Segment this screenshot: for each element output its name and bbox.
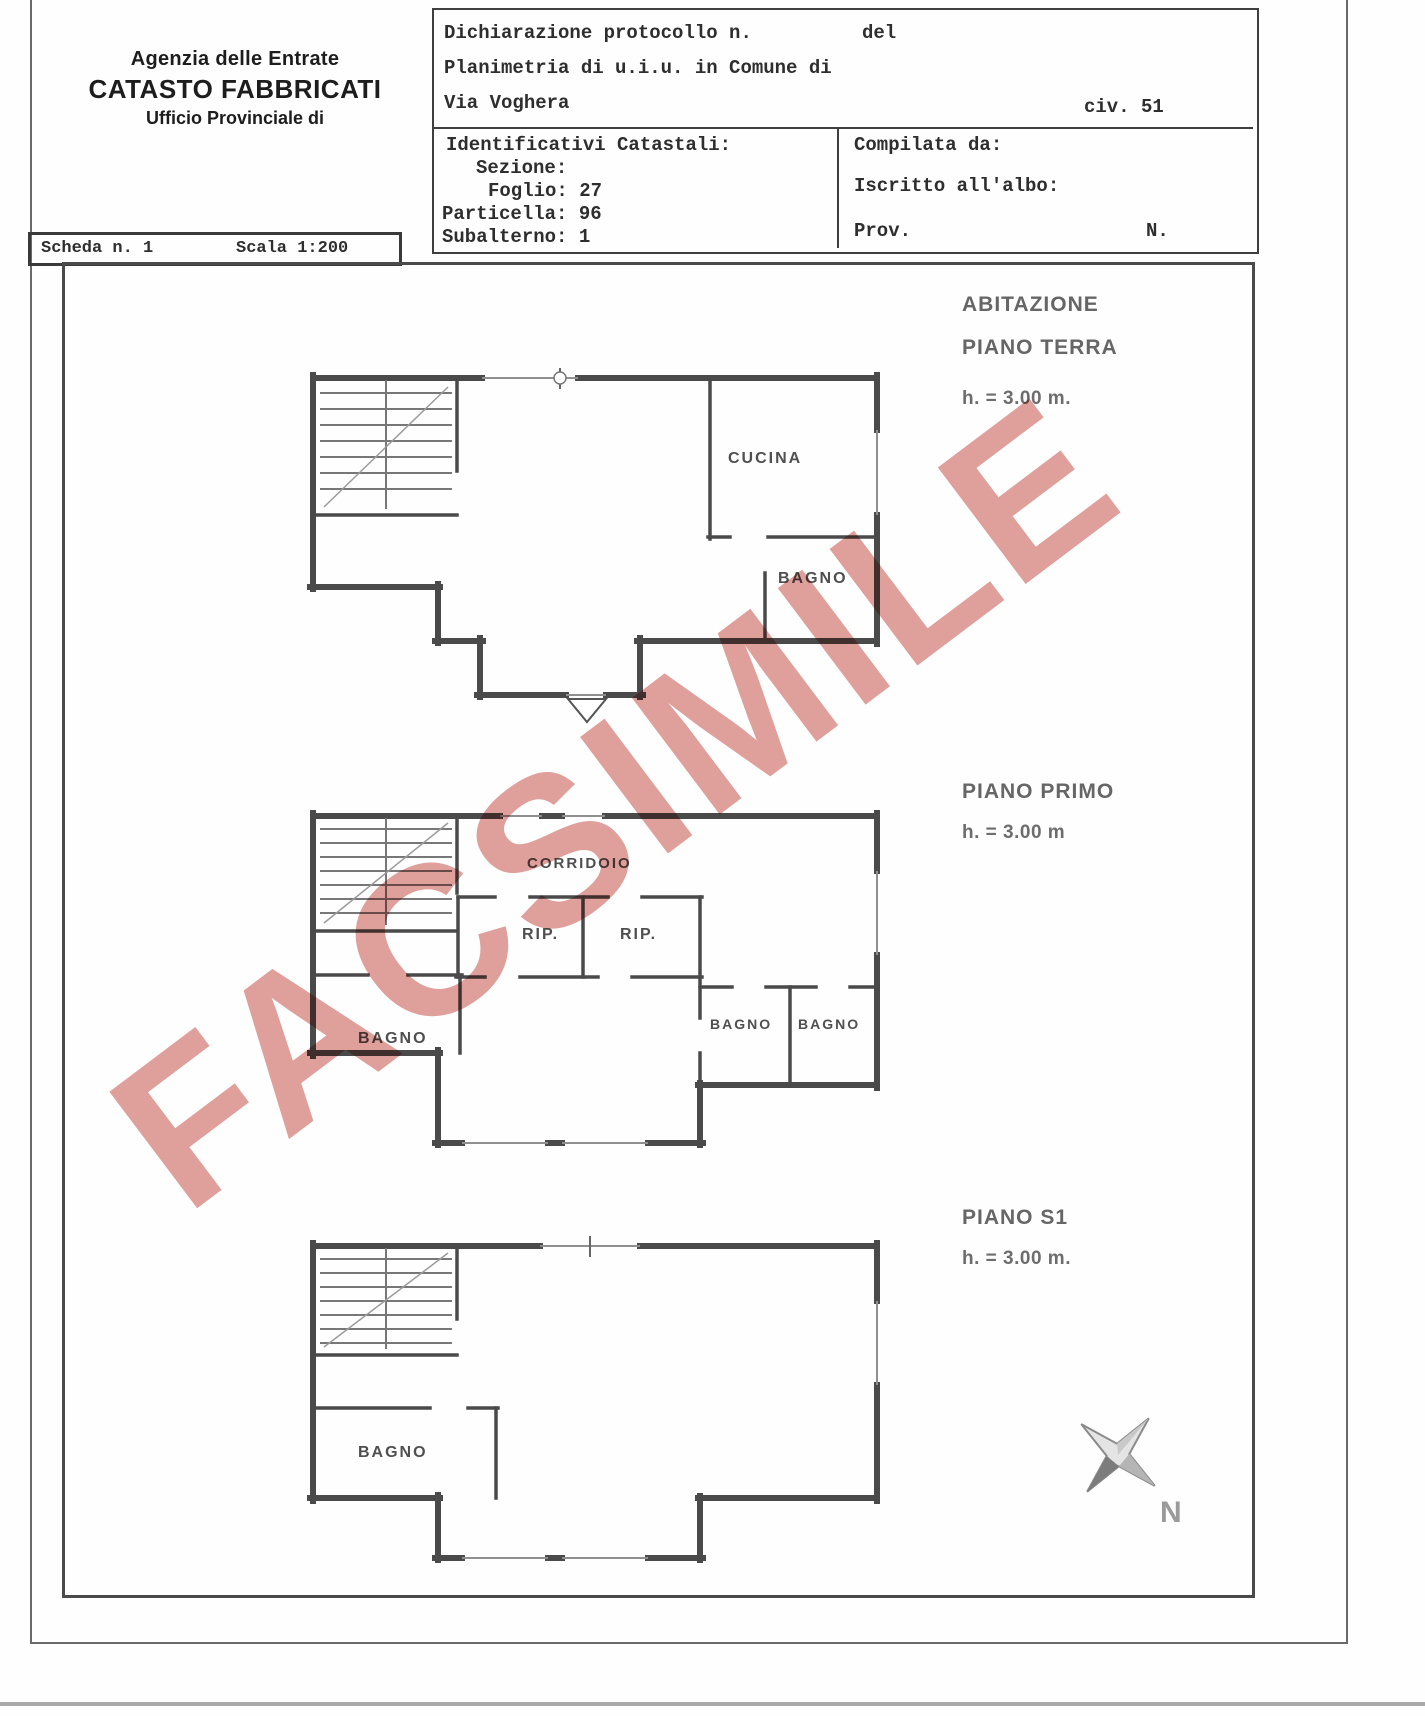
stairs-icon (320, 380, 452, 509)
window-symbol-icon (554, 372, 566, 384)
form-row-divider (434, 127, 1253, 129)
particella-value: Particella: 96 (442, 205, 602, 224)
page-bottom-edge (0, 1702, 1425, 1706)
subalterno-value: Subalterno: 1 (442, 228, 590, 247)
foglio-value: Foglio: 27 (488, 182, 602, 201)
room-label-bagno-s1: BAGNO (358, 1444, 428, 1462)
form-col-divider (837, 127, 839, 248)
compass-rose-icon (1068, 1405, 1168, 1505)
compilata-da-label: Compilata da: (854, 136, 1002, 155)
stairs-icon (320, 1248, 452, 1349)
window-lines (462, 1246, 877, 1558)
floor-title-abitazione: ABITAZIONE (962, 293, 1099, 317)
sezione-label: Sezione: (476, 159, 567, 178)
n-label: N. (1146, 222, 1169, 241)
dichiarazione-label: Dichiarazione protocollo n. (444, 24, 752, 43)
scheda-number: Scheda n. 1 (41, 240, 153, 257)
agency-header: Agenzia delle Entrate CATASTO FABBRICATI… (85, 48, 385, 129)
protocol-form-box: Dichiarazione protocollo n. del Planimet… (432, 8, 1259, 254)
floor-title-piano-primo: PIANO PRIMO (962, 780, 1114, 804)
catasto-title: CATASTO FABBRICATI (85, 74, 385, 105)
identificativi-title: Identificativi Catastali: (446, 136, 731, 155)
floor-plan-piano-s1 (310, 1243, 880, 1573)
room-label-bagno-primo-mid: BAGNO (710, 1016, 772, 1032)
via-value: Via Voghera (444, 94, 569, 113)
floor-title-piano-s1: PIANO S1 (962, 1206, 1068, 1230)
scala-value: Scala 1:200 (236, 240, 348, 257)
prov-label: Prov. (854, 222, 911, 241)
room-label-bagno-primo-right: BAGNO (798, 1016, 860, 1032)
floor-title-piano-terra: PIANO TERRA (962, 336, 1118, 360)
outer-walls (310, 1243, 877, 1560)
ufficio-provinciale: Ufficio Provinciale di (85, 108, 385, 129)
del-label: del (862, 24, 896, 43)
floor-height-primo: h. = 3.00 m (962, 822, 1065, 844)
room-label-cucina: CUCINA (728, 450, 802, 468)
iscritto-albo-label: Iscritto all'albo: (854, 177, 1059, 196)
civico-value: civ. 51 (1084, 98, 1164, 117)
floor-height-s1: h. = 3.00 m. (962, 1248, 1071, 1270)
agency-name: Agenzia delle Entrate (85, 48, 385, 71)
scheda-box: Scheda n. 1 Scala 1:200 (28, 232, 402, 266)
cadastral-document-page: Agenzia delle Entrate CATASTO FABBRICATI… (0, 0, 1425, 1716)
planimetria-label: Planimetria di u.i.u. in Comune di (444, 59, 832, 78)
